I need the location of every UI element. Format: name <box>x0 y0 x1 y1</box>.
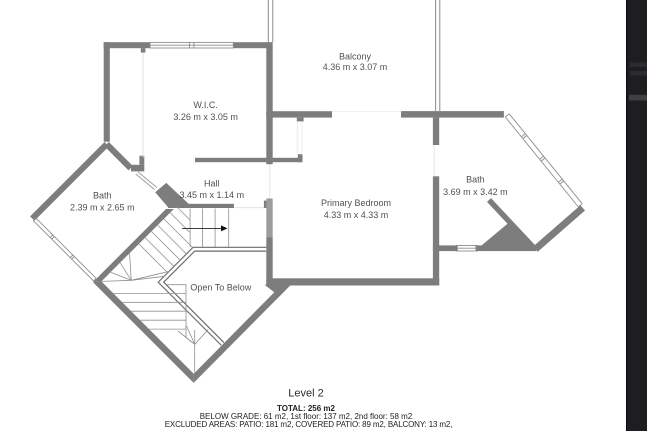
svg-text:Balcony: Balcony <box>339 52 372 62</box>
svg-text:3.26 m x 3.05 m: 3.26 m x 3.05 m <box>173 112 238 122</box>
svg-text:Bath: Bath <box>466 175 485 185</box>
svg-text:EXCLUDED AREAS: PATIO: 181 m2,: EXCLUDED AREAS: PATIO: 181 m2, COVERED P… <box>165 420 453 429</box>
svg-text:W.I.C.: W.I.C. <box>193 100 218 110</box>
svg-text:Level 2: Level 2 <box>288 388 323 400</box>
svg-text:Hall: Hall <box>204 179 220 189</box>
svg-text:4.33 m x 4.33 m: 4.33 m x 4.33 m <box>324 210 389 220</box>
svg-text:Bath: Bath <box>93 191 112 201</box>
svg-text:2.39 m x 2.65 m: 2.39 m x 2.65 m <box>70 202 135 212</box>
svg-text:Primary Bedroom: Primary Bedroom <box>321 198 391 208</box>
svg-text:3.45 m x 1.14 m: 3.45 m x 1.14 m <box>180 190 245 200</box>
svg-text:3.69 m x 3.42 m: 3.69 m x 3.42 m <box>443 187 508 197</box>
svg-text:Open To Below: Open To Below <box>190 282 251 292</box>
svg-text:4.36 m x 3.07 m: 4.36 m x 3.07 m <box>323 62 388 72</box>
